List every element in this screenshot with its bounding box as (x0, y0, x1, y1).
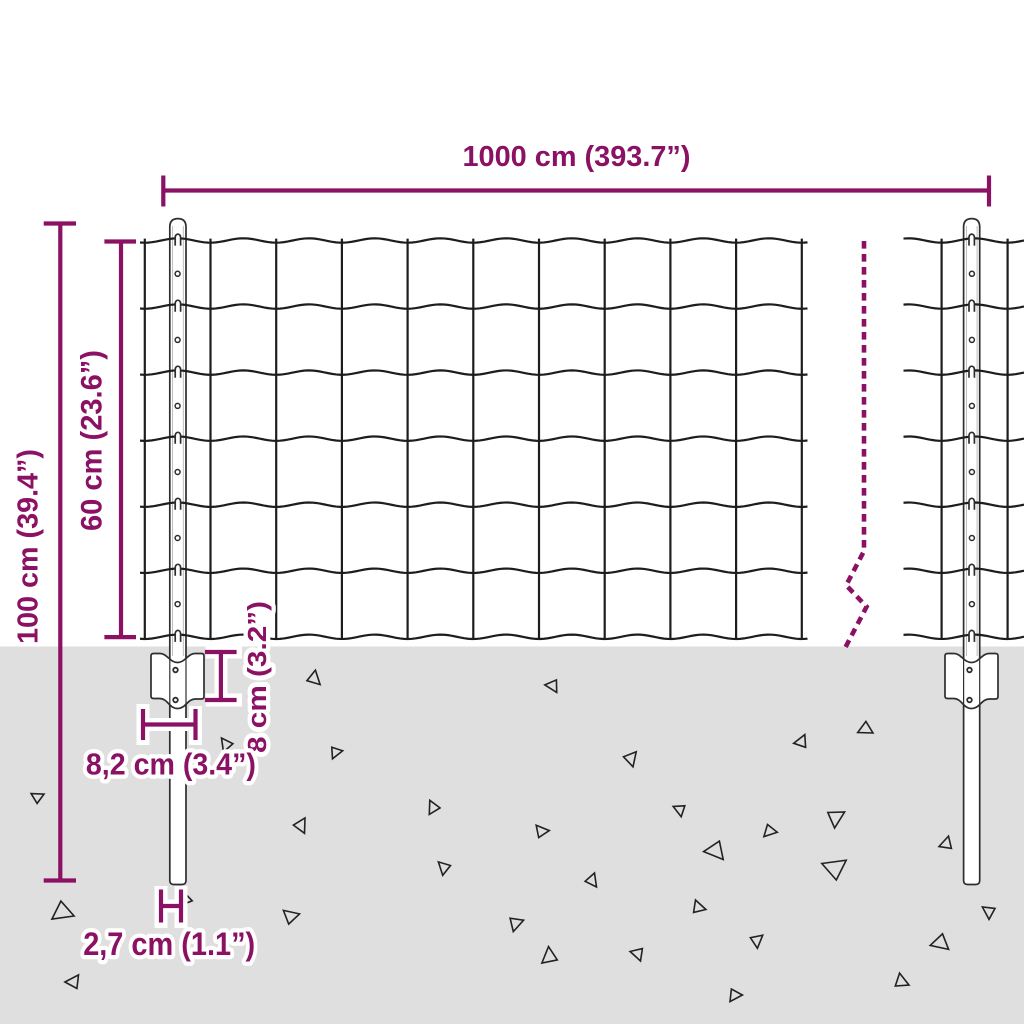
svg-text:8 cm (3.2”): 8 cm (3.2”) (244, 601, 272, 753)
svg-text:100 cm (39.4”): 100 cm (39.4”) (13, 449, 45, 644)
svg-text:8,2 cm (3.4”): 8,2 cm (3.4”) (86, 747, 256, 781)
svg-text:1000 cm (393.7”): 1000 cm (393.7”) (463, 141, 691, 173)
svg-text:60 cm (23.6”): 60 cm (23.6”) (76, 350, 109, 531)
svg-text:2,7 cm (1.1”): 2,7 cm (1.1”) (83, 926, 255, 962)
